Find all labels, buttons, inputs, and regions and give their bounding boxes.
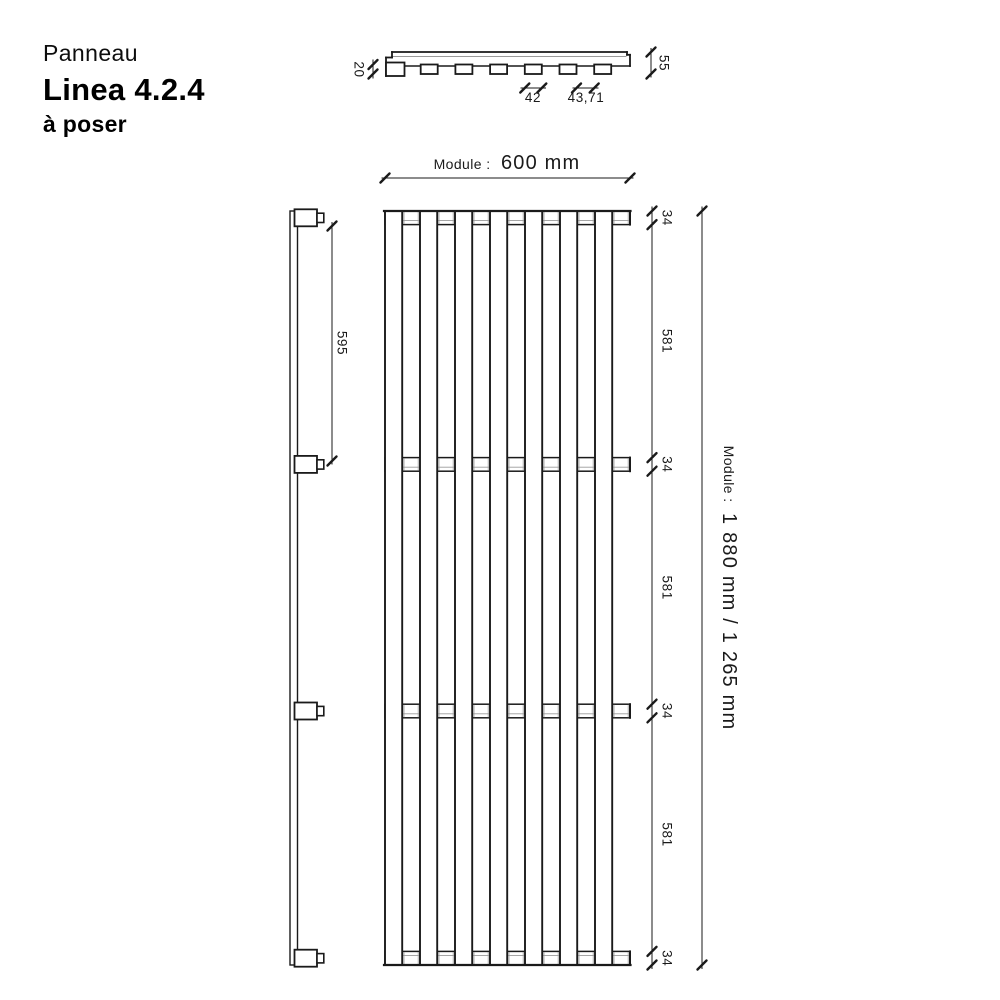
rail-block-tab	[317, 213, 324, 222]
chain-dim-6: 34	[660, 950, 675, 966]
slat-section	[525, 65, 542, 75]
dim-module-width: Module : 600 mm	[434, 152, 581, 174]
slat-section	[560, 65, 577, 75]
chain-dim-0: 34	[660, 210, 675, 226]
slat-section	[455, 65, 472, 75]
front-view	[384, 211, 631, 965]
slat	[385, 211, 402, 965]
slat	[420, 211, 437, 965]
technical-drawing: 20 55 42 43,71 Module : 600 mm 595 34 58…	[0, 0, 1000, 1000]
slat-section	[594, 65, 611, 75]
chain-dim-3: 581	[660, 576, 675, 600]
rail-block	[295, 456, 318, 473]
slat	[490, 211, 507, 965]
dim-module-height: Module : 1 880 mm / 1 265 mm	[718, 446, 740, 731]
rail-block-tab	[317, 706, 324, 715]
slat	[560, 211, 577, 965]
dim-slat-width: 42	[525, 90, 541, 105]
drawing-page: Panneau Linea 4.2.4 à poser 20 55 42 43,…	[0, 0, 1000, 1000]
rail-block-tab	[317, 460, 324, 469]
slat-section	[490, 65, 507, 75]
rail-block	[295, 950, 318, 967]
slat	[455, 211, 472, 965]
slat-section	[421, 65, 438, 75]
rail-block-tab	[317, 954, 324, 963]
chain-dim-4: 34	[660, 703, 675, 719]
chain-dim-2: 34	[660, 456, 675, 472]
side-view	[290, 209, 324, 966]
dim-slat-gap: 43,71	[568, 90, 605, 105]
dim-slat-thickness: 20	[352, 61, 367, 77]
dim-rail-spacing: 595	[335, 331, 350, 355]
slat-section-end	[386, 63, 405, 77]
dim-total-depth: 55	[657, 55, 672, 71]
chain-dim-1: 581	[660, 329, 675, 353]
slat	[525, 211, 542, 965]
section-view	[386, 52, 630, 76]
rail-block	[295, 209, 318, 226]
chain-dim-5: 581	[660, 822, 675, 846]
rail-block	[295, 703, 318, 720]
slat	[595, 211, 612, 965]
slat-profile	[290, 211, 298, 965]
